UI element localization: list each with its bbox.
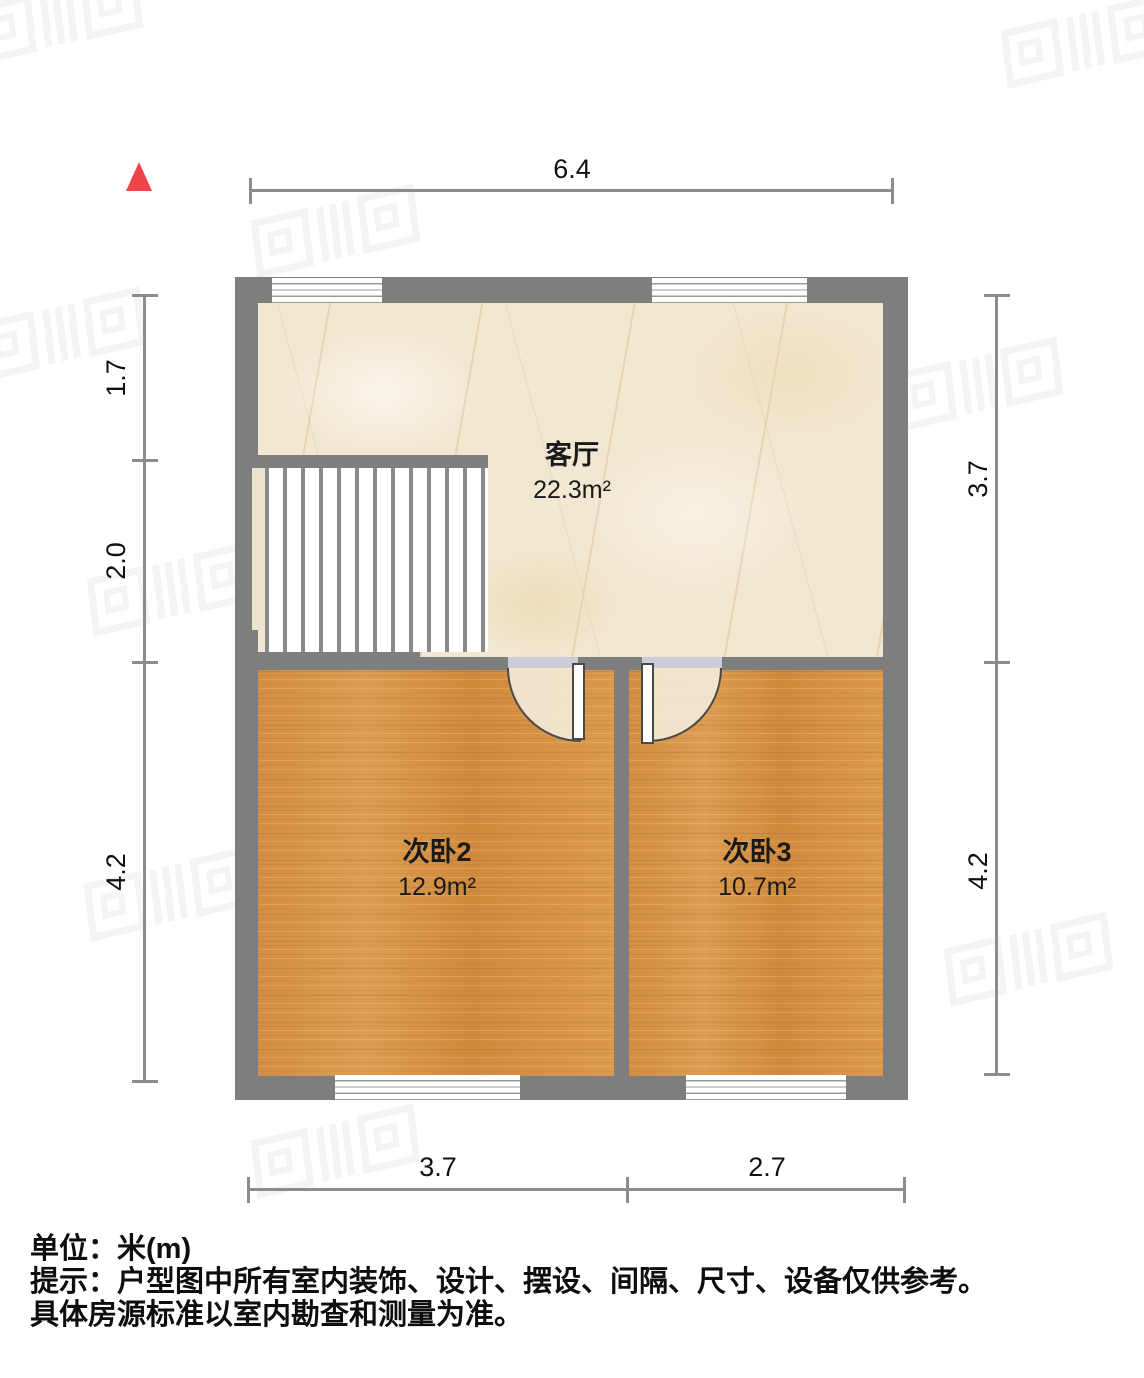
dimension-tick xyxy=(984,1073,1010,1076)
dimension-label-right: 3.7 xyxy=(963,437,993,521)
window-bottom-left xyxy=(335,1075,520,1100)
dimension-tick xyxy=(132,661,158,664)
watermark-logo xyxy=(894,336,1064,431)
watermark-logo xyxy=(1001,0,1144,89)
dimension-label-left: 1.7 xyxy=(101,336,131,420)
watermark-square-icon xyxy=(357,183,421,254)
watermark-bars-icon xyxy=(1009,928,1048,989)
dimension-tick xyxy=(132,459,158,462)
room-label-living: 客厅 22.3m² xyxy=(487,440,657,505)
door-leaf-bedroom3 xyxy=(641,663,654,744)
watermark-square-icon xyxy=(80,0,144,40)
north-arrow-icon xyxy=(126,162,152,191)
watermark-logo xyxy=(944,911,1114,1006)
watermark-square-icon xyxy=(1050,911,1114,982)
dimension-label-right: 4.2 xyxy=(963,829,993,913)
dimension-label-top: 6.4 xyxy=(250,154,894,185)
room-area: 22.3m² xyxy=(487,475,657,505)
disclaimer-line-1: 提示：户型图中所有室内装饰、设计、摆设、间隔、尺寸、设备仅供参考。 xyxy=(30,1266,987,1299)
watermark-square-icon xyxy=(0,311,40,382)
staircase-landing-edge xyxy=(252,468,265,630)
watermark-logo xyxy=(0,0,143,65)
dimension-label-bottom: 2.7 xyxy=(628,1152,906,1183)
watermark-bars-icon xyxy=(959,353,998,414)
disclaimer-line-2: 具体房源标准以室内勘查和测量为准。 xyxy=(30,1299,987,1332)
dimension-line-right xyxy=(995,295,998,1075)
room-area: 10.7m² xyxy=(672,872,842,902)
dimension-line-bottom xyxy=(248,1188,906,1191)
watermark-logo xyxy=(251,1103,421,1198)
window-top-right xyxy=(652,278,807,303)
dimension-label-bottom: 3.7 xyxy=(248,1152,628,1183)
watermark-bars-icon xyxy=(42,303,81,364)
window-bottom-right xyxy=(686,1075,846,1100)
staircase-treads xyxy=(265,468,488,652)
watermark-square-icon xyxy=(1000,336,1064,407)
room-name: 客厅 xyxy=(487,440,657,470)
watermark-bars-icon xyxy=(152,558,191,619)
room-name: 次卧2 xyxy=(352,837,522,867)
watermark-bars-icon xyxy=(149,863,188,924)
staircase-bottom-edge xyxy=(252,652,420,658)
watermark-bars-icon xyxy=(39,0,78,48)
watermark-square-icon xyxy=(1107,0,1144,64)
floor-plan: 客厅 22.3m² 次卧2 12.9m² 次卧3 10.7m² xyxy=(235,277,908,1100)
staircase-rail xyxy=(252,455,488,468)
dimension-line-top xyxy=(250,189,894,192)
dimension-label-left: 4.2 xyxy=(101,830,131,914)
watermark-square-icon xyxy=(0,0,37,65)
room-area: 12.9m² xyxy=(352,872,522,902)
dimension-line-left xyxy=(143,295,146,1082)
footer-notes: 单位：米(m) 提示：户型图中所有室内装饰、设计、摆设、间隔、尺寸、设备仅供参考… xyxy=(30,1233,987,1332)
watermark-logo xyxy=(251,183,421,278)
watermark-square-icon xyxy=(251,208,315,279)
dimension-tick xyxy=(984,294,1010,297)
dimension-label-left: 2.0 xyxy=(101,519,131,603)
watermark-square-icon xyxy=(1001,18,1065,89)
room-label-bedroom2: 次卧2 12.9m² xyxy=(352,837,522,902)
watermark-bars-icon xyxy=(1066,10,1105,71)
window-top-left xyxy=(272,278,382,303)
dimension-tick xyxy=(984,661,1010,664)
room-label-bedroom3: 次卧3 10.7m² xyxy=(672,837,842,902)
dimension-tick xyxy=(132,1080,158,1083)
watermark-bars-icon xyxy=(316,200,355,261)
door-leaf-bedroom2 xyxy=(572,663,585,740)
dimension-tick xyxy=(132,294,158,297)
unit-label: 单位：米(m) xyxy=(30,1233,987,1266)
room-name: 次卧3 xyxy=(672,837,842,867)
